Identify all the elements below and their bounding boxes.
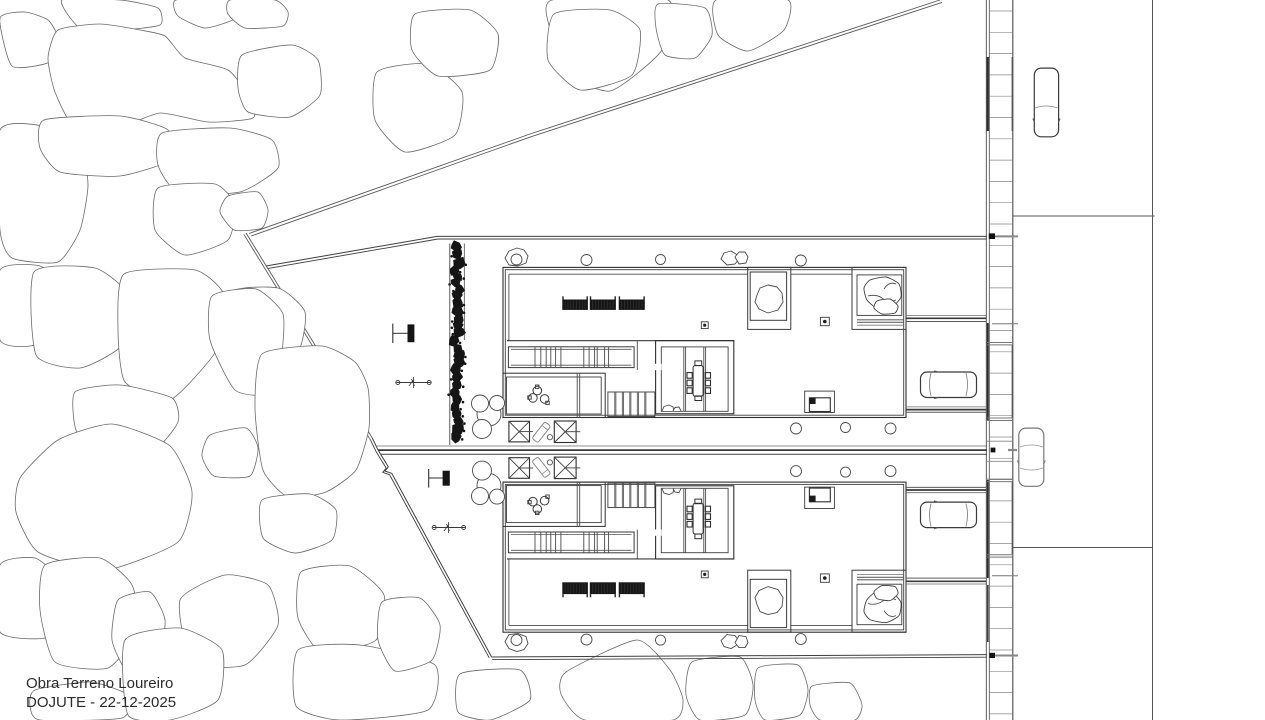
svg-text:DOJUTE - 22-12-2025: DOJUTE - 22-12-2025 xyxy=(26,694,176,711)
svg-text:Obra Terreno Loureiro: Obra Terreno Loureiro xyxy=(26,675,173,692)
